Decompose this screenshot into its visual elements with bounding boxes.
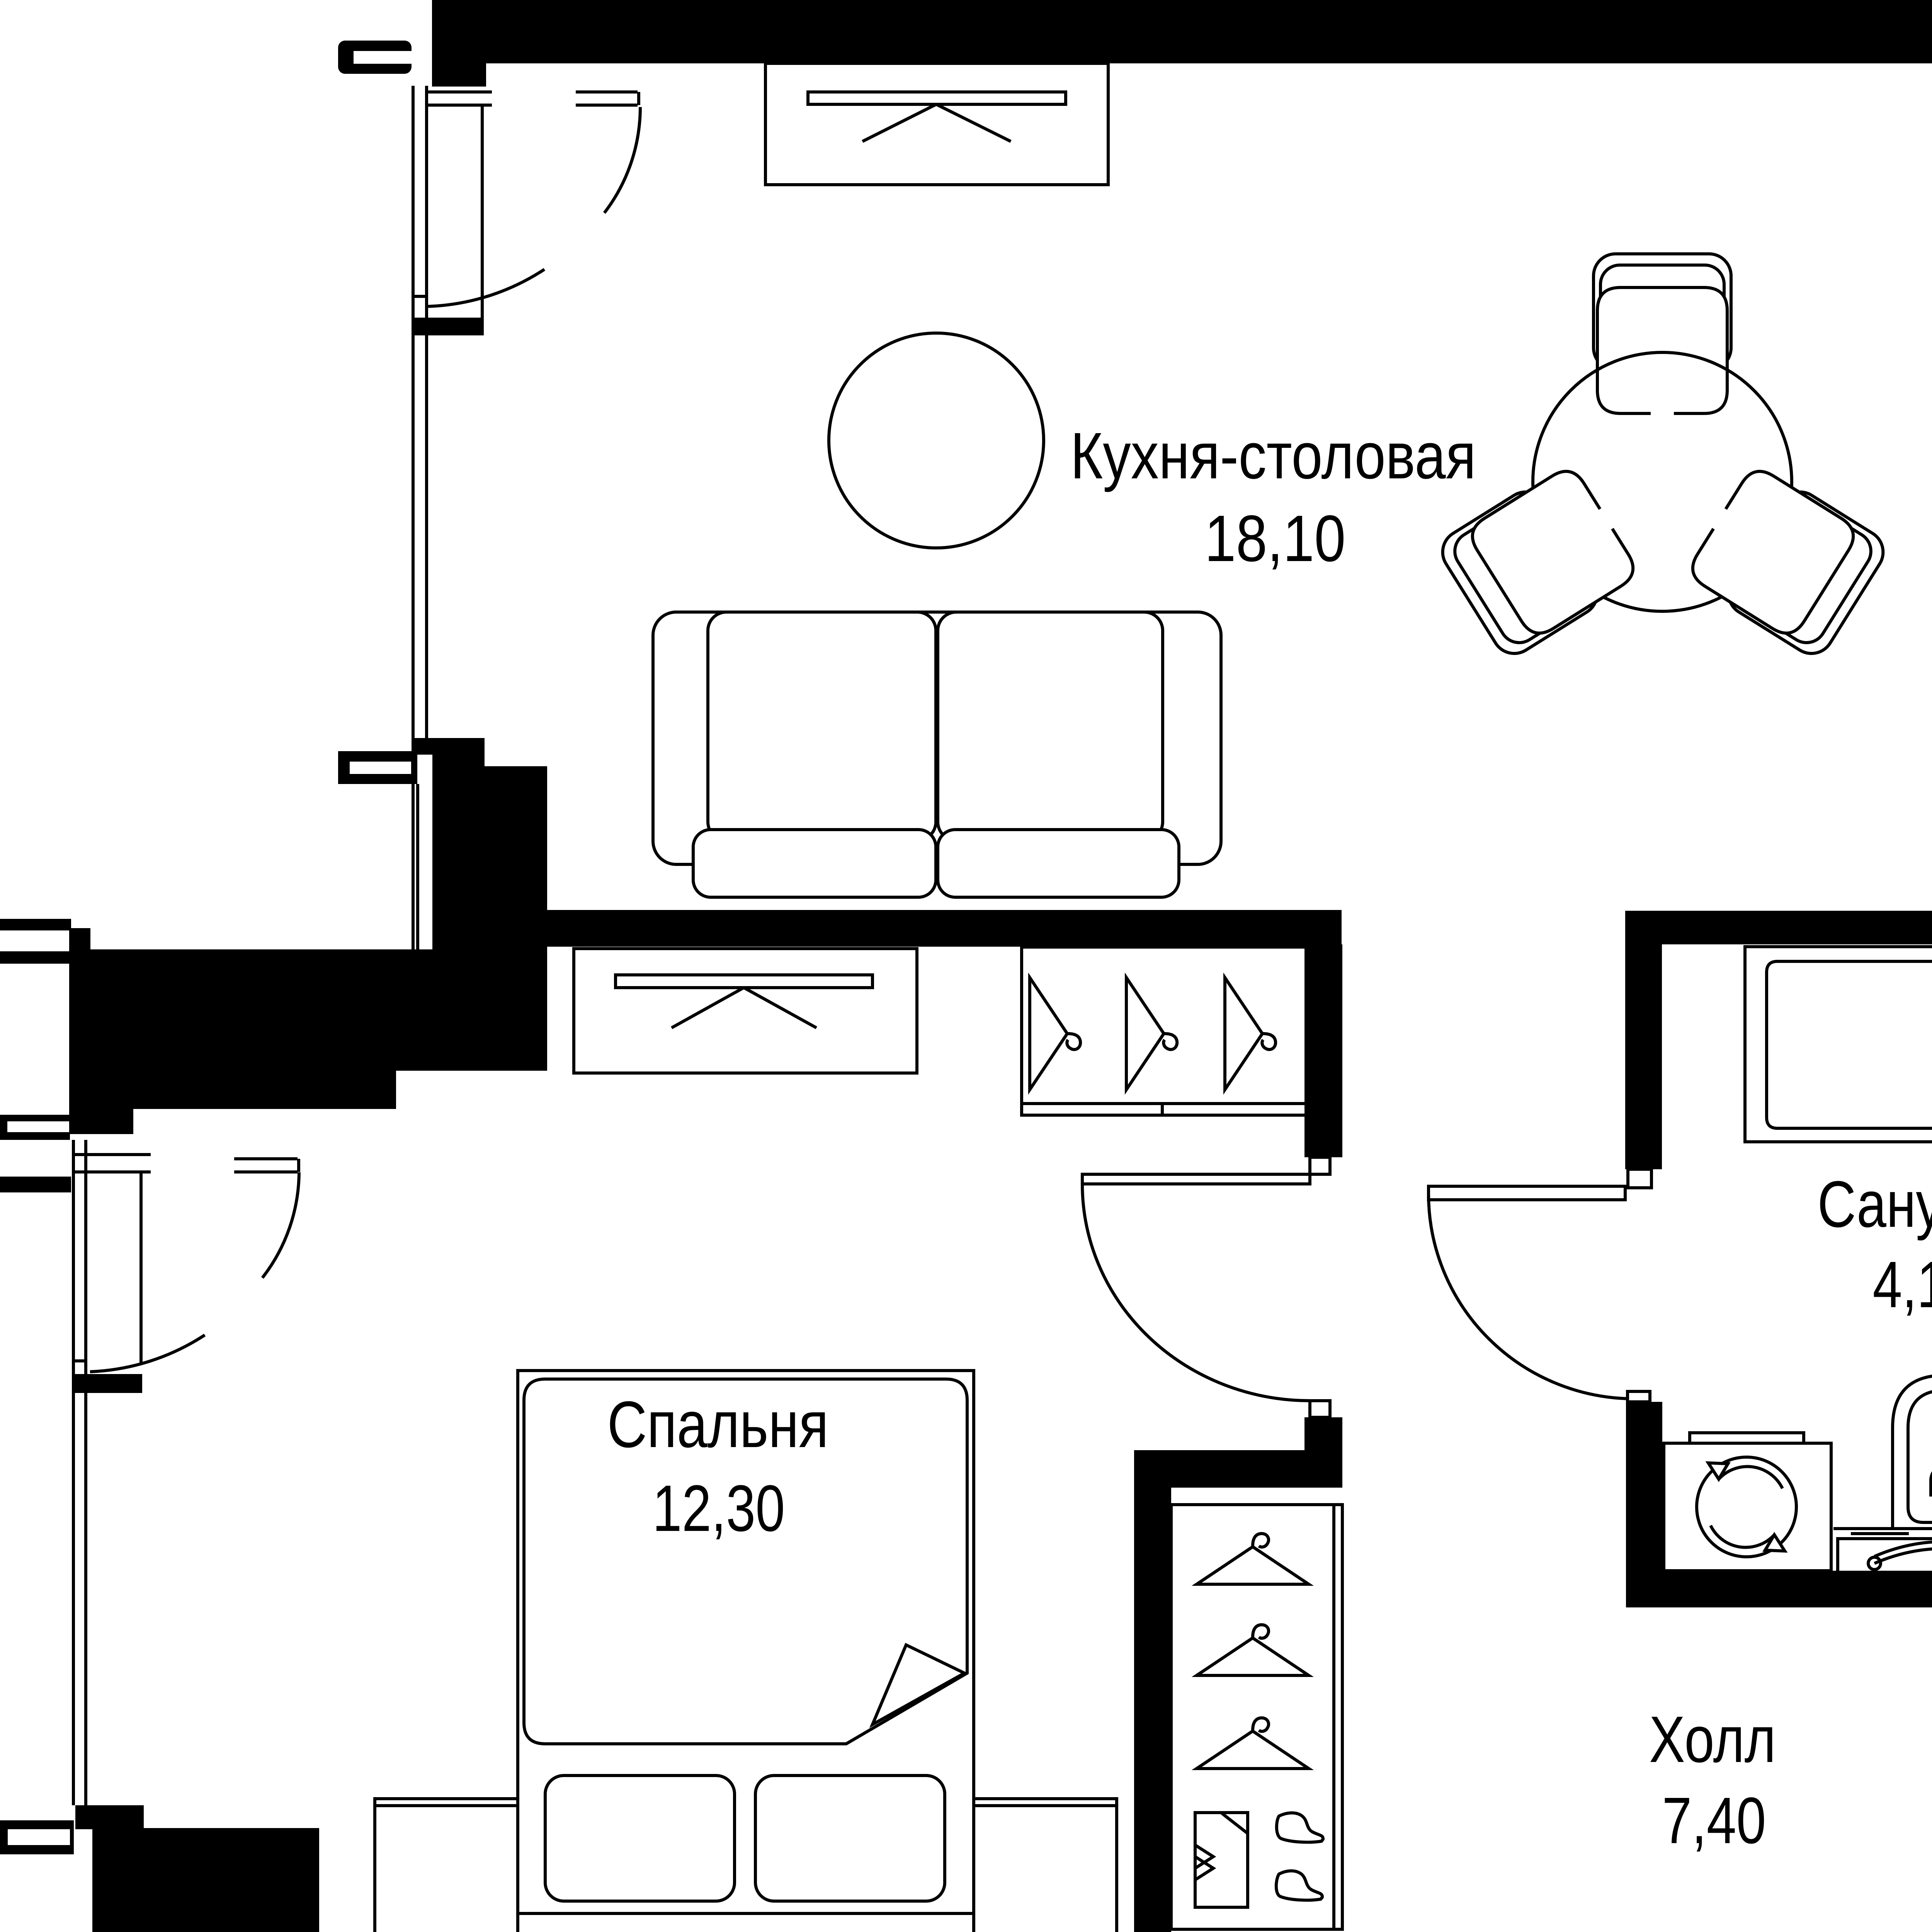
svg-text:12,30: 12,30	[653, 1472, 785, 1545]
svg-text:7,40: 7,40	[1662, 1784, 1766, 1857]
svg-text:Кухня-столовая: Кухня-столовая	[1070, 419, 1476, 493]
svg-text:4,10: 4,10	[1873, 1248, 1932, 1321]
svg-text:Санузел: Санузел	[1818, 1168, 1932, 1241]
svg-text:Спальня: Спальня	[607, 1388, 829, 1461]
svg-text:Холл: Холл	[1649, 1703, 1776, 1776]
svg-text:18,10: 18,10	[1205, 502, 1346, 575]
